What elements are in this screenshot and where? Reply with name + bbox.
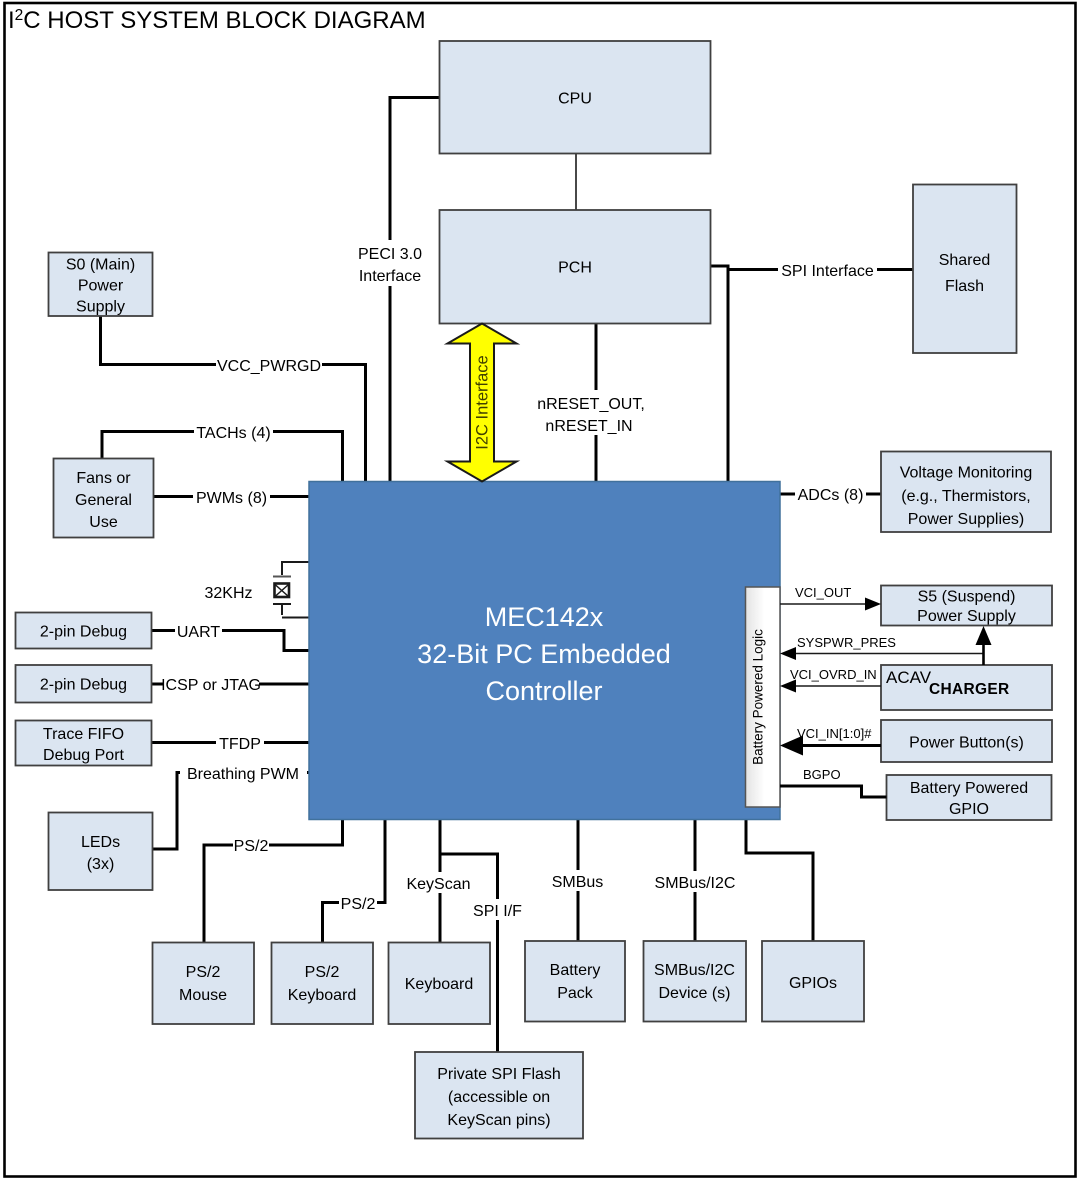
svg-text:Trace FIFO: Trace FIFO [43,726,124,743]
svg-text:I2C Interface: I2C Interface [474,355,492,449]
svg-text:PS/2: PS/2 [234,838,269,855]
svg-text:nRESET_OUT,: nRESET_OUT, [537,396,645,413]
svg-text:SYSPWR_PRES: SYSPWR_PRES [797,635,896,650]
svg-text:Private SPI Flash: Private SPI Flash [437,1066,561,1083]
svg-text:S5 (Suspend): S5 (Suspend) [918,589,1016,606]
svg-text:GPIO: GPIO [949,801,989,818]
svg-text:Keyboard: Keyboard [288,987,357,1004]
svg-text:PWMs (8): PWMs (8) [196,490,267,507]
svg-text:BGPO: BGPO [803,767,841,782]
svg-text:Power Button(s): Power Button(s) [909,735,1024,752]
svg-text:PECI 3.0: PECI 3.0 [358,246,422,263]
svg-text:CPU: CPU [558,91,592,108]
svg-text:VCI_IN[1:0]#: VCI_IN[1:0]# [797,726,872,741]
svg-text:ACAV: ACAV [886,668,932,687]
svg-text:Power: Power [78,278,124,295]
svg-text:Fans or: Fans or [76,470,131,487]
svg-text:(e.g., Thermistors,: (e.g., Thermistors, [901,488,1031,505]
svg-text:2-pin Debug: 2-pin Debug [40,624,127,641]
svg-text:Breathing PWM: Breathing PWM [187,766,299,783]
svg-text:Pack: Pack [557,985,594,1002]
svg-text:S0 (Main): S0 (Main) [66,257,135,274]
svg-text:nRESET_IN: nRESET_IN [545,418,632,435]
svg-text:32KHz: 32KHz [204,585,252,602]
svg-text:Use: Use [89,514,118,531]
svg-text:Mouse: Mouse [179,987,227,1004]
svg-text:Device (s): Device (s) [658,985,730,1002]
svg-text:2-pin Debug: 2-pin Debug [40,677,127,694]
svg-text:ICSP or JTAG: ICSP or JTAG [161,677,261,694]
svg-text:SPI Interface: SPI Interface [781,263,874,280]
svg-text:GPIOs: GPIOs [789,975,837,992]
svg-text:I2C HOST SYSTEM BLOCK DIAGRAM: I2C HOST SYSTEM BLOCK DIAGRAM [8,7,426,34]
svg-text:Debug Port: Debug Port [43,747,124,764]
svg-text:Supply: Supply [76,299,125,316]
svg-text:SMBus: SMBus [552,874,604,891]
svg-text:Controller: Controller [485,676,602,706]
svg-text:Flash: Flash [945,278,984,295]
svg-text:TFDP: TFDP [219,736,261,753]
svg-text:Power Supplies): Power Supplies) [908,511,1025,528]
svg-text:VCI_OVRD_IN: VCI_OVRD_IN [790,667,877,682]
svg-text:General: General [75,492,132,509]
svg-text:Interface: Interface [359,268,421,285]
svg-text:KeyScan pins): KeyScan pins) [447,1112,550,1129]
svg-text:TACHs (4): TACHs (4) [196,425,270,442]
svg-text:Battery Powered Logic: Battery Powered Logic [751,629,766,765]
svg-text:PCH: PCH [558,260,592,277]
svg-text:PS/2: PS/2 [341,896,376,913]
svg-text:Shared: Shared [939,252,991,269]
svg-text:MEC142x: MEC142x [485,602,604,632]
svg-text:UART: UART [177,624,220,641]
svg-text:SPI I/F: SPI I/F [473,903,522,920]
svg-text:PS/2: PS/2 [305,964,340,981]
svg-text:32-Bit PC Embedded: 32-Bit PC Embedded [417,639,671,669]
svg-text:Voltage Monitoring: Voltage Monitoring [900,465,1033,482]
svg-text:PS/2: PS/2 [186,964,221,981]
svg-text:VCI_OUT: VCI_OUT [795,585,851,600]
svg-text:SMBus/I2C: SMBus/I2C [654,962,735,979]
svg-text:SMBus/I2C: SMBus/I2C [655,875,736,892]
svg-text:CHARGER: CHARGER [929,681,1009,698]
svg-text:(3x): (3x) [87,856,115,873]
svg-text:(accessible on: (accessible on [448,1089,550,1106]
svg-text:LEDs: LEDs [81,834,120,851]
svg-text:VCC_PWRGD: VCC_PWRGD [217,358,321,375]
svg-text:Battery Powered: Battery Powered [910,780,1028,797]
svg-text:ADCs (8): ADCs (8) [798,487,864,504]
svg-text:KeyScan: KeyScan [406,876,470,893]
svg-text:Keyboard: Keyboard [405,976,474,993]
svg-text:Power Supply: Power Supply [917,608,1016,625]
svg-text:Battery: Battery [550,962,601,979]
